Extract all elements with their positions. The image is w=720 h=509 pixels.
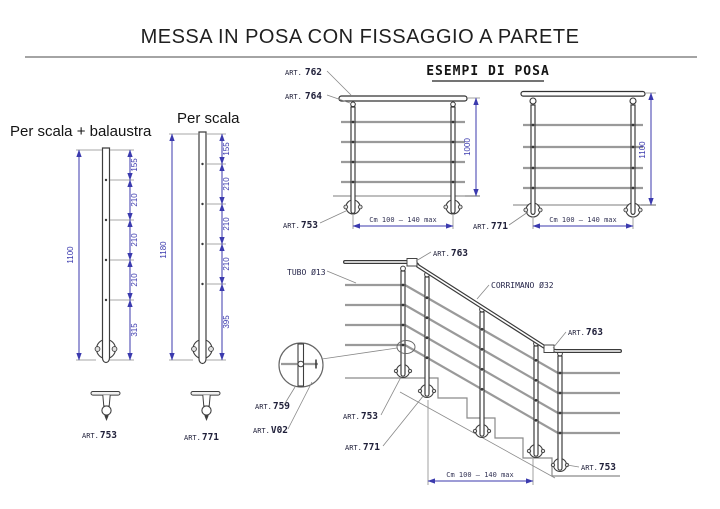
stair-post-top-label: ART.753	[343, 411, 378, 422]
technical-drawing-page: MESSA IN POSA CON FISSAGGIO A PARETE ESE…	[0, 0, 720, 509]
svg-text:210: 210	[222, 177, 231, 191]
post-a-total-dim: 1100	[66, 246, 75, 264]
svg-text:395: 395	[222, 315, 231, 329]
example-2-right-ball-mount	[630, 98, 636, 104]
example-1-height-dimension: 1000	[463, 98, 480, 196]
svg-text:210: 210	[222, 217, 231, 231]
svg-text:210: 210	[130, 193, 139, 207]
stair-handrail-label: CORRIMANO Ø32	[491, 280, 554, 290]
post-a-drawing: Per scala + balaustra 1100	[10, 123, 152, 441]
example-1-height-dim: 1000	[463, 138, 472, 156]
example-1-junction-dots	[352, 121, 455, 184]
page-title: MESSA IN POSA CON FISSAGGIO A PARETE	[141, 26, 580, 48]
example-2-railing: 1100 Cm 100 – 140 max ART.771	[473, 92, 656, 233]
example-1-bracket-label: ART.764	[285, 91, 322, 102]
post-a-overall-dimension: 1100	[66, 150, 102, 360]
stair-tube-label: TUBO Ø13	[287, 267, 326, 277]
stair-corner-top-label: ART.763	[433, 248, 468, 259]
stair-corner-joint-top	[407, 259, 417, 267]
post-b-segment-dimensions: 155 210 210 210 395	[206, 134, 231, 360]
example-2-flange-label: ART.771	[473, 221, 508, 232]
post-b-overall-dimension: 1180	[159, 134, 199, 360]
example-1-handrail	[339, 96, 467, 101]
stair-post-slope-label: ART.771	[345, 442, 380, 453]
example-1-handrail-label: ART.762	[285, 67, 322, 78]
example-2-tubes	[523, 125, 643, 188]
example-2-width-dimension: Cm 100 – 140 max	[533, 216, 633, 229]
example-1-width-dimension: Cm 100 – 140 max	[353, 215, 453, 229]
post-b-drawing: Per scala 1180	[159, 110, 240, 443]
example-2-height-dim: 1100	[638, 141, 647, 159]
example-2-handrail	[521, 92, 645, 97]
example-1-width-dim: Cm 100 – 140 max	[369, 216, 436, 224]
svg-text:210: 210	[222, 257, 231, 271]
stair-corner-joint-mid	[544, 345, 554, 353]
example-2-left-post	[531, 105, 535, 214]
post-a-article-label: ART.753	[82, 430, 117, 441]
svg-text:315: 315	[130, 323, 139, 337]
svg-text:210: 210	[130, 233, 139, 247]
example-1-tubes	[341, 122, 465, 182]
example-2-junction-dots	[532, 124, 635, 190]
railing-installation-diagram: MESSA IN POSA CON FISSAGGIO A PARETE ESE…	[0, 0, 720, 509]
stair-detail-target-circle	[397, 341, 415, 354]
post-b-bracket-side-view	[191, 392, 220, 422]
svg-text:155: 155	[130, 158, 139, 172]
example-2-width-dim: Cm 100 – 140 max	[549, 216, 616, 224]
example-2-left-ball-mount	[530, 98, 536, 104]
post-a-title: Per scala + balaustra	[10, 123, 152, 140]
example-2-right-post	[631, 105, 635, 214]
example-1-left-handrail-bracket	[351, 102, 356, 107]
post-b-title: Per scala	[177, 110, 240, 127]
example-1-flange-label: ART.753	[283, 220, 318, 231]
stair-detail-circle	[279, 343, 323, 387]
svg-text:155: 155	[222, 142, 231, 156]
post-b-article-label: ART.771	[184, 432, 219, 443]
stair-width-dim: Cm 100 – 140 max	[446, 471, 513, 479]
svg-text:210: 210	[130, 273, 139, 287]
post-a-segment-dimensions: 155 210 210 210 315	[110, 150, 139, 360]
post-a-bracket-side-view	[91, 392, 120, 422]
example-1-right-handrail-bracket	[451, 102, 456, 107]
section-header: ESEMPI DI POSA	[426, 64, 550, 79]
stair-corner-mid-label: ART.763	[568, 327, 603, 338]
example-1-railing: 1000 Cm 100 – 140 max ART.762 ART.764 AR…	[283, 67, 480, 231]
staircase-diagram: Cm 100 – 140 max TUBO Ø13 CORRIMANO Ø32 …	[253, 248, 620, 485]
stair-detail-2-label: ART.V02	[253, 425, 288, 436]
post-b-shaft	[199, 132, 206, 364]
post-b-total-dim: 1180	[159, 241, 168, 259]
stair-post-bottom-label: ART.753	[581, 462, 616, 473]
